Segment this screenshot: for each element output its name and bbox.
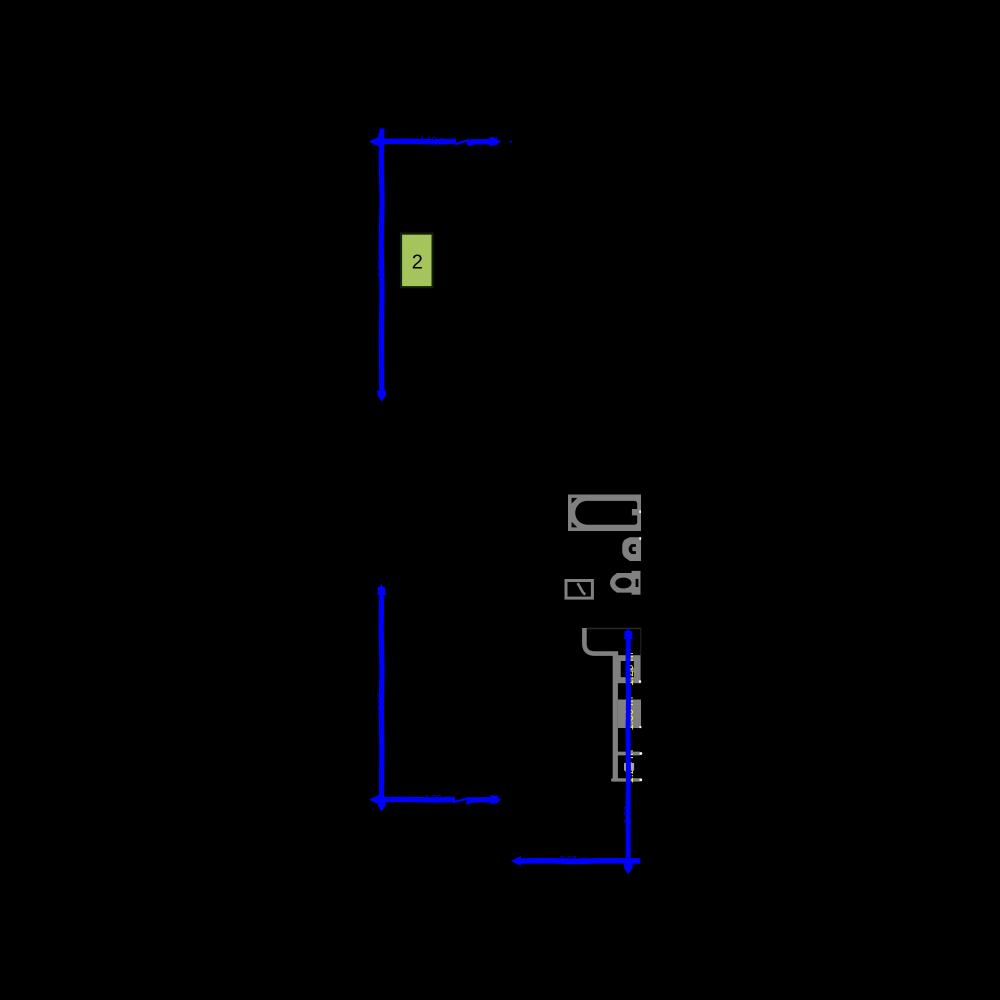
svg-text:2: 2 <box>412 252 423 274</box>
